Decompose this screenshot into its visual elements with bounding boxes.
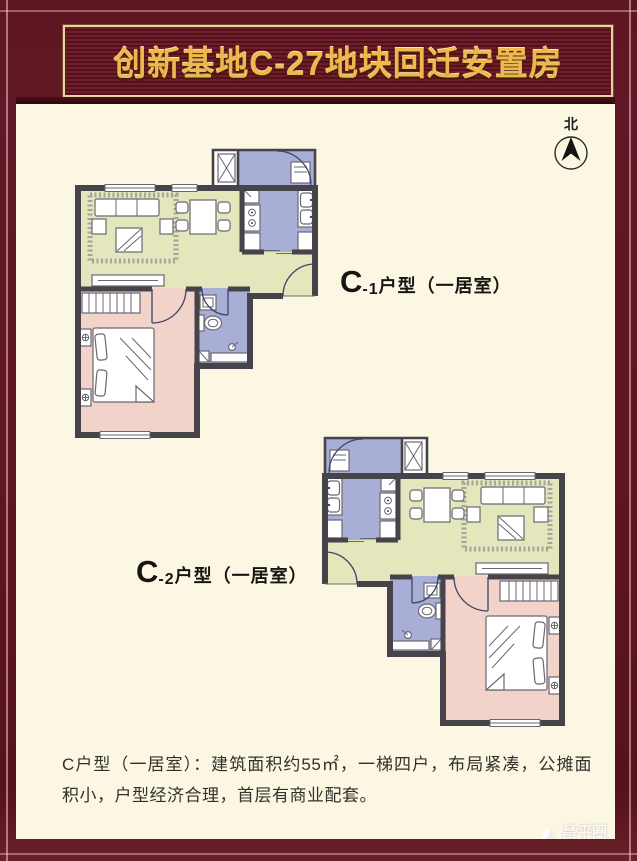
poster-title: 创新基地C-27地块回迁安置房 — [113, 37, 563, 85]
floor-plan-canvas: 北 — [16, 104, 615, 839]
floor-plan-c1 — [78, 150, 315, 439]
plan-c2-letter: C — [136, 554, 158, 589]
watermark-text: 昌平圈 — [562, 821, 607, 842]
plan-c1-letter: C — [340, 264, 362, 299]
plan-c1-type: 户型（一居室） — [379, 276, 512, 296]
title-banner: 创新基地C-27地块回迁安置房 — [63, 25, 613, 97]
plan-label-c1: C-1户型（一居室） — [340, 264, 512, 300]
floor-plans-svg — [16, 104, 615, 839]
plan-c1-number: -1 — [362, 281, 378, 298]
crop-guide-bottom — [0, 853, 637, 855]
crop-guide-top — [0, 10, 637, 12]
plan-c2-type: 户型（一居室） — [175, 566, 308, 586]
poster: 创新基地C-27地块回迁安置房 北 — [0, 0, 637, 861]
crop-guide-left — [6, 0, 8, 861]
unit-description: C户型（一居室）：建筑面积约55㎡，一梯四户，布局紧凑，公摊面积小，户型经济合理… — [62, 749, 592, 811]
crop-guide-right — [629, 0, 631, 861]
floor-plan-c2 — [325, 438, 562, 727]
watermark: 昌平圈 — [538, 821, 607, 842]
banner-shadow — [16, 97, 615, 104]
plan-c2-number: -2 — [158, 571, 174, 588]
watermark-logo-icon — [538, 823, 558, 841]
plan-label-c2: C-2户型（一居室） — [136, 554, 308, 590]
